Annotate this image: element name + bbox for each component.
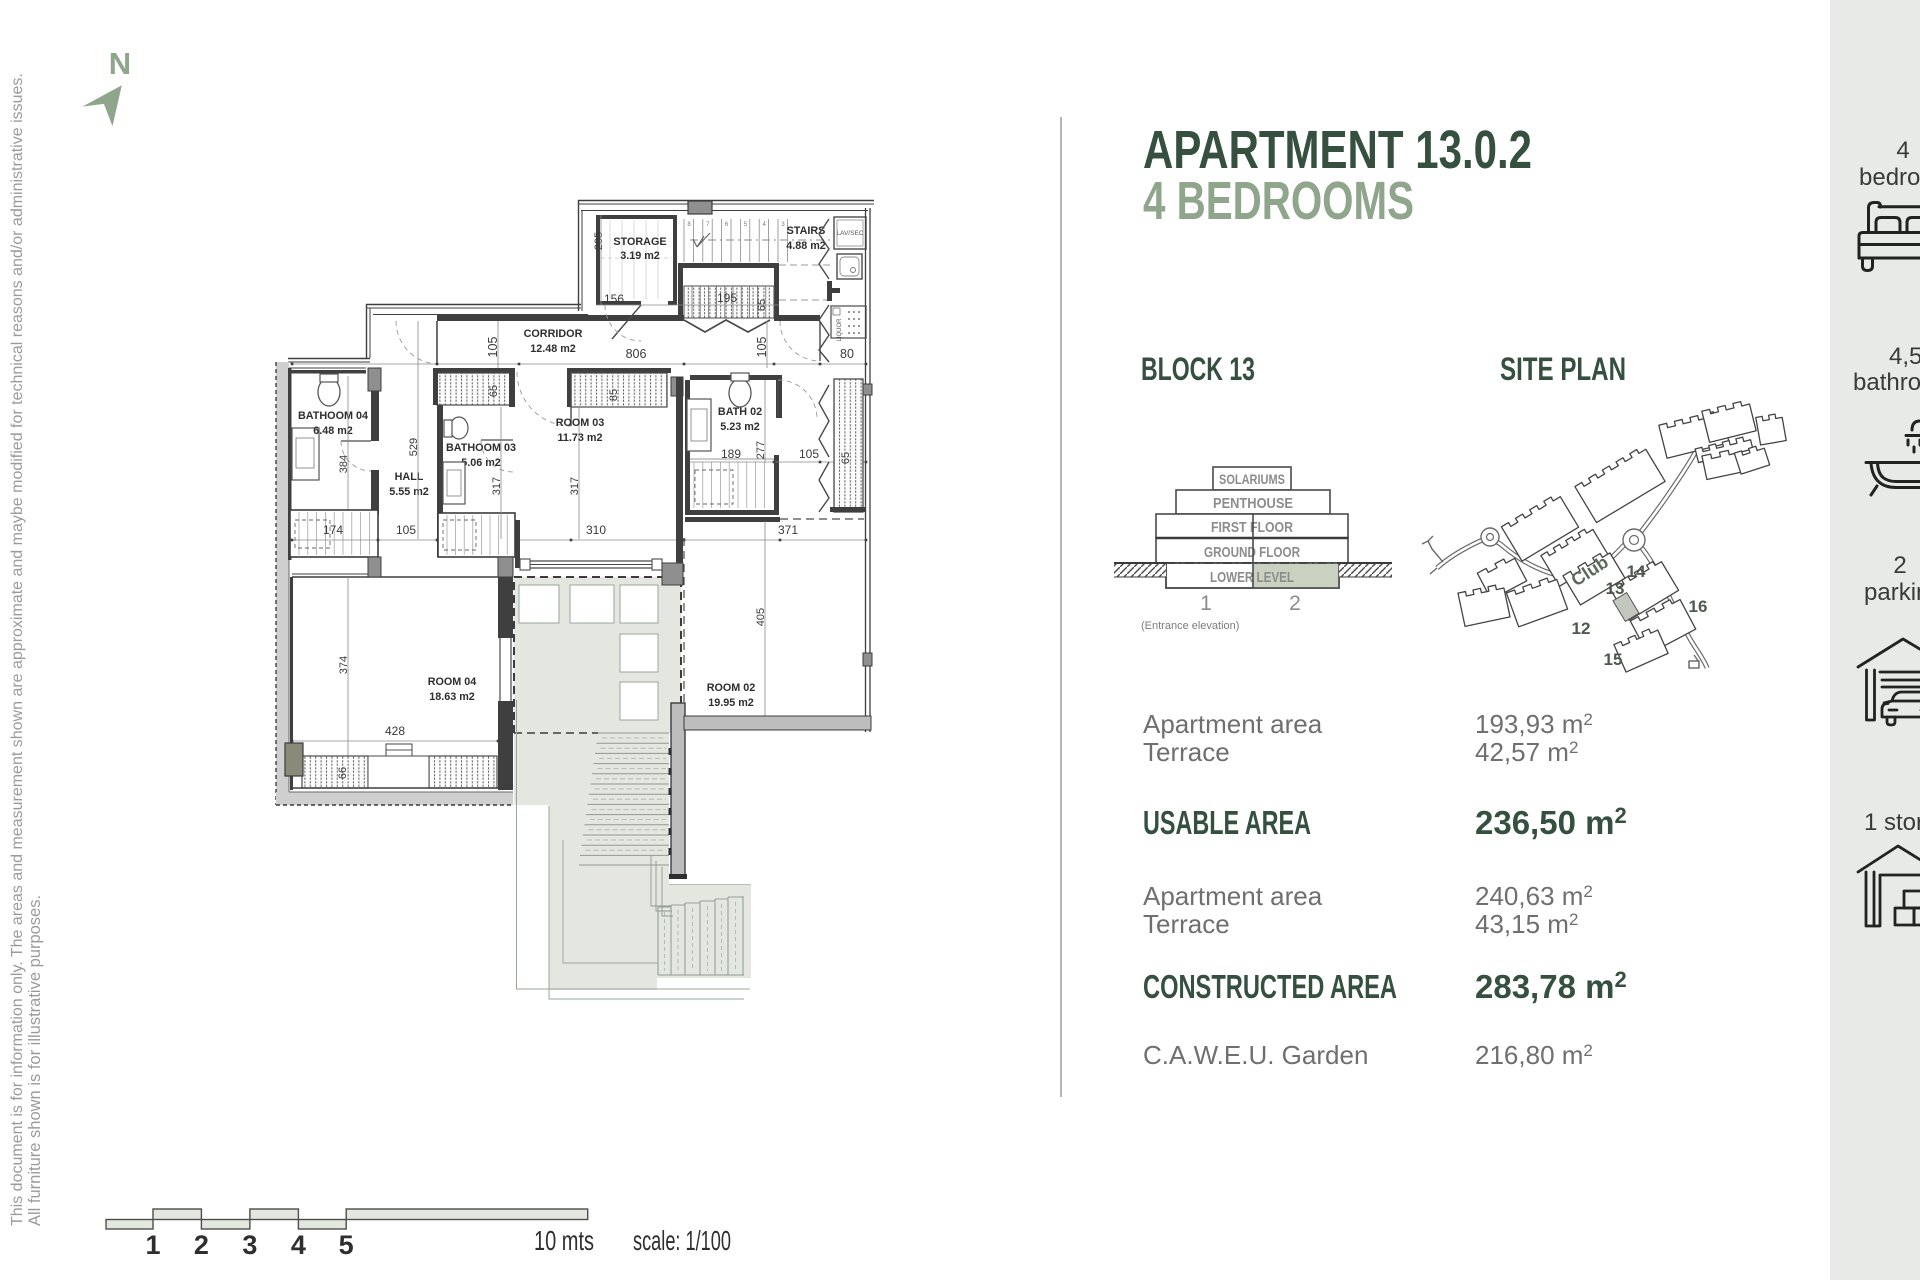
svg-text:6.48 m2: 6.48 m2 [313,425,353,437]
svg-text:Terrace: Terrace [1143,737,1230,767]
svg-text:216,80 m2: 216,80 m2 [1475,1040,1593,1070]
svg-text:Apartment area: Apartment area [1143,881,1323,911]
svg-text:12.48 m2: 12.48 m2 [530,343,576,355]
svg-text:PENTHOUSE: PENTHOUSE [1213,495,1293,512]
svg-text:85: 85 [608,389,620,401]
svg-text:189: 189 [721,447,741,461]
svg-text:4: 4 [1896,137,1909,164]
svg-text:LIQUOR: LIQUOR [837,318,843,342]
svg-text:14: 14 [1627,562,1646,581]
svg-text:All furniture shown is for ill: All furniture shown is for illustrative … [26,895,44,1226]
svg-text:5.23 m2: 5.23 m2 [720,421,760,433]
svg-text:parking: parking [1864,579,1920,606]
svg-text:BATHOOM 04: BATHOOM 04 [298,410,368,422]
svg-text:15: 15 [1604,650,1623,669]
svg-text:FIRST FLOOR: FIRST FLOOR [1211,519,1293,536]
svg-text:16: 16 [1689,597,1708,616]
svg-text:4,5: 4,5 [1889,343,1920,370]
svg-text:USABLE AREA: USABLE AREA [1143,804,1311,841]
svg-text:66: 66 [337,767,349,779]
svg-text:80: 80 [840,347,854,361]
svg-text:C.A.W.E.U. Garden: C.A.W.E.U. Garden [1143,1040,1368,1070]
svg-text:This document is for informati: This document is for information only. T… [9,73,26,1226]
svg-text:806: 806 [626,347,647,361]
svg-text:LOWER LEVEL: LOWER LEVEL [1210,569,1294,586]
svg-text:bedrooms: bedrooms [1859,164,1920,191]
svg-text:CONSTRUCTED AREA: CONSTRUCTED AREA [1143,968,1397,1005]
svg-text:5.55 m2: 5.55 m2 [389,486,429,498]
svg-text:1 storage: 1 storage [1864,809,1920,836]
svg-text:205: 205 [593,232,605,250]
svg-text:scale: 1/100: scale: 1/100 [633,1225,731,1256]
svg-text:ROOM 03: ROOM 03 [556,417,605,429]
svg-text:(Entrance elevation): (Entrance elevation) [1141,620,1239,632]
svg-text:42,57 m2: 42,57 m2 [1475,737,1578,767]
svg-text:2: 2 [1893,552,1906,579]
svg-text:GROUND FLOOR: GROUND FLOOR [1204,544,1300,561]
svg-text:13: 13 [1606,579,1625,598]
svg-text:HALL: HALL [395,471,424,483]
svg-text:65: 65 [488,385,500,397]
svg-text:SOLARIUMS: SOLARIUMS [1219,471,1285,487]
svg-text:CORRIDOR: CORRIDOR [524,328,583,340]
svg-text:4: 4 [291,1230,306,1260]
svg-text:1: 1 [145,1230,160,1260]
svg-text:428: 428 [385,724,405,738]
svg-text:5: 5 [339,1230,354,1260]
svg-text:236,50 m2: 236,50 m2 [1475,803,1627,841]
svg-text:193,93 m2: 193,93 m2 [1475,709,1593,739]
svg-text:11.73 m2: 11.73 m2 [557,432,602,444]
svg-text:Terrace: Terrace [1143,909,1230,939]
svg-text:12: 12 [1572,619,1591,638]
svg-text:LAV/SEC: LAV/SEC [837,230,864,237]
svg-text:3.19 m2: 3.19 m2 [620,250,660,262]
svg-text:2: 2 [194,1230,209,1260]
svg-text:105: 105 [799,447,819,461]
svg-text:5.06 m2: 5.06 m2 [461,457,501,469]
svg-text:310: 310 [586,523,606,537]
svg-text:240,63 m2: 240,63 m2 [1475,881,1593,911]
svg-text:ROOM 02: ROOM 02 [707,682,756,694]
svg-text:174: 174 [323,523,343,537]
svg-text:4.88 m2: 4.88 m2 [786,240,826,252]
svg-text:SITE PLAN: SITE PLAN [1500,351,1626,387]
svg-text:10 mts: 10 mts [534,1225,594,1256]
svg-text:N: N [109,46,131,81]
svg-text:4 BEDROOMS: 4 BEDROOMS [1143,171,1414,231]
svg-text:STORAGE: STORAGE [613,236,666,248]
svg-text:3: 3 [242,1230,257,1260]
svg-text:2: 2 [1289,592,1301,615]
svg-text:19.95 m2: 19.95 m2 [708,697,754,709]
svg-text:18.63 m2: 18.63 m2 [429,691,475,703]
svg-text:283,78 m2: 283,78 m2 [1475,967,1627,1005]
svg-text:BLOCK 13: BLOCK 13 [1141,351,1255,387]
svg-text:43,15 m2: 43,15 m2 [1475,909,1578,939]
svg-text:156: 156 [604,292,624,306]
svg-text:195: 195 [717,291,737,305]
svg-text:1: 1 [1200,592,1212,615]
svg-text:105: 105 [396,523,416,537]
svg-text:bathrooms: bathrooms [1853,369,1920,396]
svg-text:BATH 02: BATH 02 [718,406,762,418]
svg-text:Apartment area: Apartment area [1143,709,1323,739]
svg-text:371: 371 [778,523,798,537]
svg-text:65: 65 [840,452,852,464]
svg-text:ROOM 04: ROOM 04 [428,676,477,688]
